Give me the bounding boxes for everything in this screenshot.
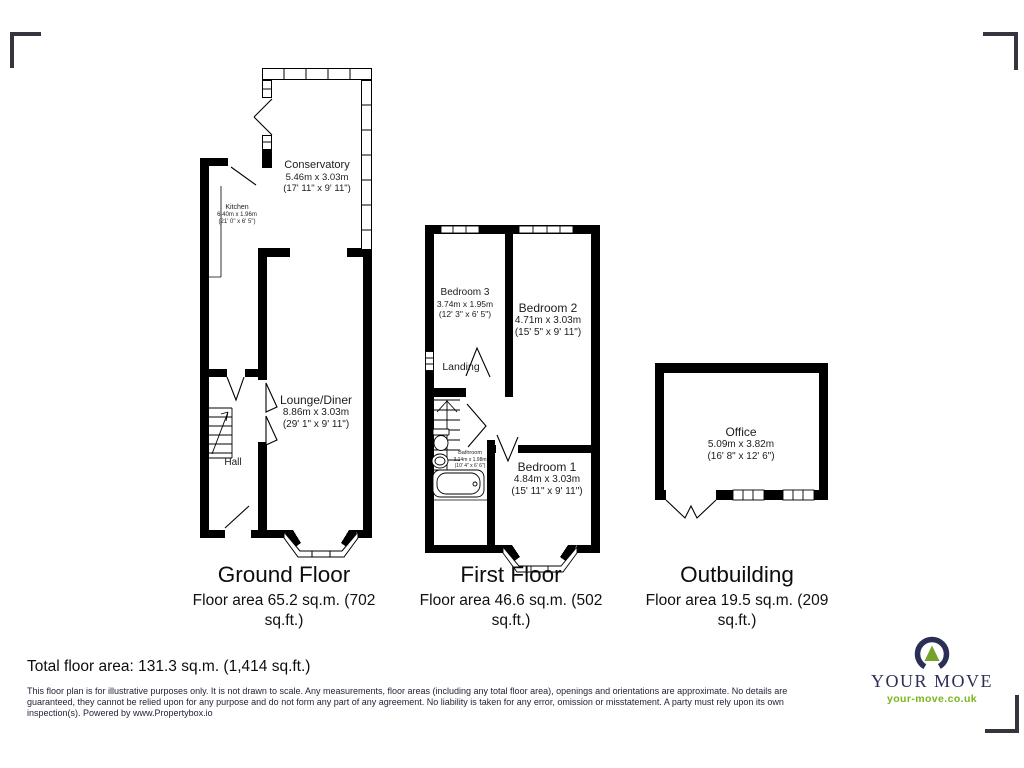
crop-corner-bottom-right — [1015, 695, 1019, 733]
room-name: Bedroom 1 — [511, 460, 582, 474]
room-size-metric: 5.09m x 3.82m — [707, 439, 774, 451]
room-label-bedroom1: Bedroom 1 4.84m x 3.03m (15' 11" x 9' 11… — [511, 460, 582, 498]
crop-corner-bottom-right — [985, 729, 1019, 733]
door-swing — [467, 404, 486, 447]
floor-area-line1: Floor area 19.5 sq.m. (209 — [646, 591, 829, 611]
room-size-metric: 6.40m x 1.96m — [217, 212, 257, 219]
room-label-bedroom2: Bedroom 2 4.71m x 3.03m (15' 5" x 9' 11"… — [515, 301, 581, 339]
outbuilding-area: Floor area 19.5 sq.m. (209 sq.ft.) — [646, 591, 829, 631]
door-swing — [227, 377, 244, 400]
room-size-imperial: (10' 4" x 6' 6") — [453, 463, 486, 469]
room-name: Bedroom 2 — [515, 301, 581, 315]
room-name: Bedroom 3 — [437, 287, 493, 299]
double-door-swing — [666, 500, 716, 518]
room-name: Bathroom — [453, 450, 486, 457]
first-floor-plan — [425, 225, 600, 572]
crop-corner-top-right — [1014, 32, 1018, 70]
room-label-conservatory: Conservatory 5.46m x 3.03m (17' 11" x 9'… — [283, 159, 351, 194]
floor-area-line2: sq.ft.) — [420, 611, 603, 631]
door-swing — [254, 99, 272, 135]
ground-walls — [200, 68, 372, 548]
room-name: Hall — [224, 457, 241, 469]
room-size-metric: 4.84m x 3.03m — [511, 474, 582, 486]
ground-window-ticks — [263, 69, 371, 557]
crop-corner-top-right — [983, 32, 1018, 36]
first-floor-title: First Floor — [460, 562, 561, 588]
double-door-leaf — [266, 383, 277, 412]
room-size-imperial: (16' 8" x 12' 6") — [707, 451, 774, 463]
room-size-imperial: (12' 3" x 6' 5") — [437, 309, 493, 319]
room-size-imperial: (15' 11" x 9' 11") — [511, 486, 582, 498]
room-size-metric: 5.46m x 3.03m — [283, 172, 351, 183]
outbuilding-title: Outbuilding — [680, 562, 794, 588]
ground-floor-title: Ground Floor — [218, 562, 351, 588]
floor-area-line2: sq.ft.) — [646, 611, 829, 631]
room-name: Office — [707, 425, 774, 439]
first-floor-area: Floor area 46.6 sq.m. (502 sq.ft.) — [420, 591, 603, 631]
floor-area-line2: sq.ft.) — [193, 611, 376, 631]
floorplan-drawing — [0, 0, 1024, 768]
room-size-imperial: (29' 1" x 9' 11") — [280, 419, 352, 431]
yourmove-logo-website: your-move.co.uk — [852, 693, 1012, 705]
door-swing — [497, 435, 518, 461]
room-size-metric: 3.74m x 1.95m — [437, 299, 493, 309]
ground-floor-plan — [200, 68, 372, 557]
room-size-imperial: (21' 0" x 6' 5") — [217, 219, 257, 226]
logo-triangle-icon — [925, 646, 940, 662]
room-name: Kitchen — [217, 204, 257, 212]
crop-corner-top-left — [10, 32, 41, 36]
room-label-landing: Landing — [442, 361, 479, 373]
room-size-metric: 3.14m x 1.98m — [453, 457, 486, 463]
first-walls — [425, 225, 600, 562]
room-label-lounge-diner: Lounge/Diner 8.86m x 3.03m (29' 1" x 9' … — [280, 393, 352, 431]
floorplan-page: Conservatory 5.46m x 3.03m (17' 11" x 9'… — [0, 0, 1024, 768]
room-size-metric: 8.86m x 3.03m — [280, 407, 352, 419]
room-size-imperial: (15' 5" x 9' 11") — [515, 327, 581, 339]
room-label-office: Office 5.09m x 3.82m (16' 8" x 12' 6") — [707, 425, 774, 463]
room-name: Conservatory — [283, 159, 351, 172]
disclaimer-line: guaranteed, they cannot be relied upon f… — [27, 697, 784, 708]
ground-stairs-icon — [209, 408, 232, 458]
ground-floor-area: Floor area 65.2 sq.m. (702 sq.ft.) — [193, 591, 376, 631]
disclaimer-line: inspection(s). Powered by www.Propertybo… — [27, 708, 213, 719]
door-swing — [231, 167, 256, 185]
floor-area-line1: Floor area 46.6 sq.m. (502 — [420, 591, 603, 611]
crop-corner-top-left — [10, 32, 14, 68]
room-size-metric: 4.71m x 3.03m — [515, 315, 581, 327]
room-label-kitchen: Kitchen 6.40m x 1.96m (21' 0" x 6' 5") — [217, 204, 257, 226]
kitchen-counter — [209, 186, 221, 277]
ground-windows — [263, 69, 372, 558]
double-door-leaf — [266, 416, 277, 445]
disclaimer-line: This floor plan is for illustrative purp… — [27, 686, 787, 697]
bathtub-drain — [473, 482, 477, 486]
room-label-hall: Hall — [224, 457, 241, 469]
front-door-swing — [225, 506, 249, 528]
yourmove-logo-wordmark: YOUR MOVE — [852, 671, 1012, 692]
room-label-bedroom3: Bedroom 3 3.74m x 1.95m (12' 3" x 6' 5") — [437, 287, 493, 319]
sink-icon — [435, 457, 445, 465]
room-name: Landing — [442, 361, 479, 373]
toilet-icon — [433, 429, 449, 435]
room-label-bathroom: Bathroom 3.14m x 1.98m (10' 4" x 6' 6") — [453, 450, 486, 469]
room-size-imperial: (17' 11" x 9' 11") — [283, 183, 351, 194]
room-name: Lounge/Diner — [280, 393, 352, 407]
floor-area-line1: Floor area 65.2 sq.m. (702 — [193, 591, 376, 611]
toilet-icon — [434, 436, 448, 451]
outbuilding-doors — [666, 500, 716, 518]
total-floor-area: Total floor area: 131.3 sq.m. (1,414 sq.… — [27, 658, 310, 676]
yourmove-logo-mark — [918, 640, 947, 669]
first-windows — [426, 226, 578, 572]
